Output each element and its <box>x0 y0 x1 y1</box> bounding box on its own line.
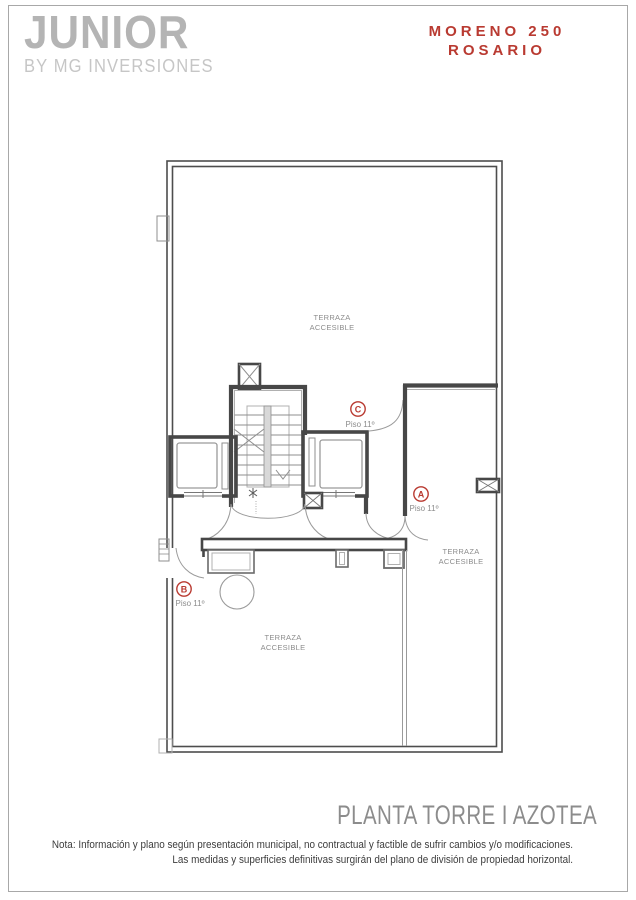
counterweight <box>222 443 228 489</box>
elevator-right <box>303 432 367 500</box>
corner-notch <box>159 739 172 753</box>
door-arc <box>383 516 405 539</box>
unit-floor-label: Piso 11º <box>345 420 374 429</box>
area-label-line1: TERRAZA <box>442 547 479 556</box>
outer-walls <box>157 161 502 753</box>
stair-break-lines <box>234 429 264 452</box>
stair-stringer <box>264 406 271 487</box>
inner-wall-line <box>173 167 497 747</box>
unit-floor-label: Piso 11º <box>175 599 204 608</box>
area-label-line2: ACCESIBLE <box>261 643 306 652</box>
disclaimer-line2: Las medidas y superficies definitivas su… <box>52 853 573 868</box>
counterweight <box>309 438 315 486</box>
unit-badge-b: B Piso 11º <box>175 582 204 608</box>
table-circle <box>220 575 254 609</box>
post-square <box>384 550 404 568</box>
parapet-bar <box>202 539 406 550</box>
drain-symbol <box>249 488 257 514</box>
area-label-terraza-right: TERRAZA ACCESIBLE <box>439 547 484 566</box>
floor-plan: TERRAZA ACCESIBLE TERRAZA ACCESIBLE TERR… <box>0 0 636 900</box>
door-arc <box>305 504 332 540</box>
unit-letter: B <box>181 585 188 595</box>
elevator-cab <box>177 443 217 488</box>
elevator-left <box>170 437 236 500</box>
disclaimer-line1: Nota: Información y plano según presenta… <box>52 838 573 853</box>
area-label-line2: ACCESIBLE <box>310 323 355 332</box>
unit-badge-c: C Piso 11º <box>345 402 374 429</box>
door-arc-unit-b <box>176 548 204 578</box>
door-arc-unit-a <box>405 516 428 540</box>
unit-badge-a: A Piso 11º <box>409 487 438 513</box>
elevator-shaft <box>170 437 236 496</box>
unit-letter: A <box>418 490 425 500</box>
door-arc <box>366 513 392 539</box>
area-label-line1: TERRAZA <box>264 633 301 642</box>
unit-floor-label: Piso 11º <box>409 504 438 513</box>
door-arc <box>204 504 231 540</box>
stair-curved-wall <box>231 504 305 518</box>
stair-core <box>231 387 305 514</box>
plan-title: PLANTA TORRE I AZOTEA <box>337 800 597 831</box>
area-label-terraza-top: TERRAZA ACCESIBLE <box>310 313 355 332</box>
area-label-line1: TERRAZA <box>313 313 350 322</box>
elevator-cab <box>320 440 362 488</box>
flyer-page: JUNIOR BY MG INVERSIONES MORENO 250 ROSA… <box>0 0 636 900</box>
area-label-line2: ACCESIBLE <box>439 557 484 566</box>
unit-letter: C <box>355 405 362 415</box>
area-label-terraza-bottom: TERRAZA ACCESIBLE <box>261 633 306 652</box>
disclaimer-note: Nota: Información y plano según presenta… <box>52 838 573 868</box>
duct-shaft <box>304 493 322 508</box>
